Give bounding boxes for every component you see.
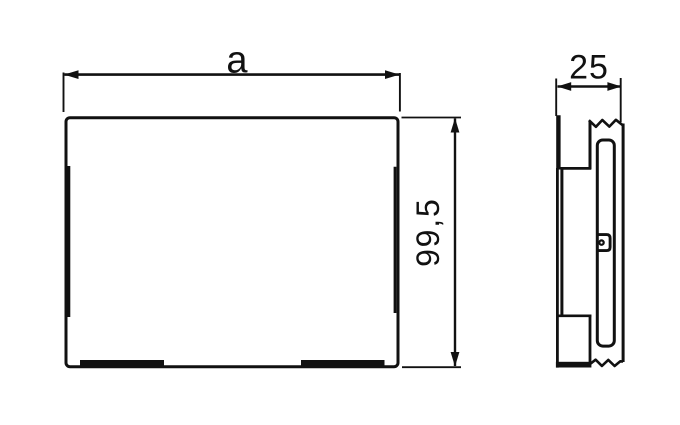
svg-text:99,5: 99,5 (410, 197, 446, 266)
svg-text:a: a (226, 39, 248, 81)
svg-text:25: 25 (569, 49, 609, 87)
